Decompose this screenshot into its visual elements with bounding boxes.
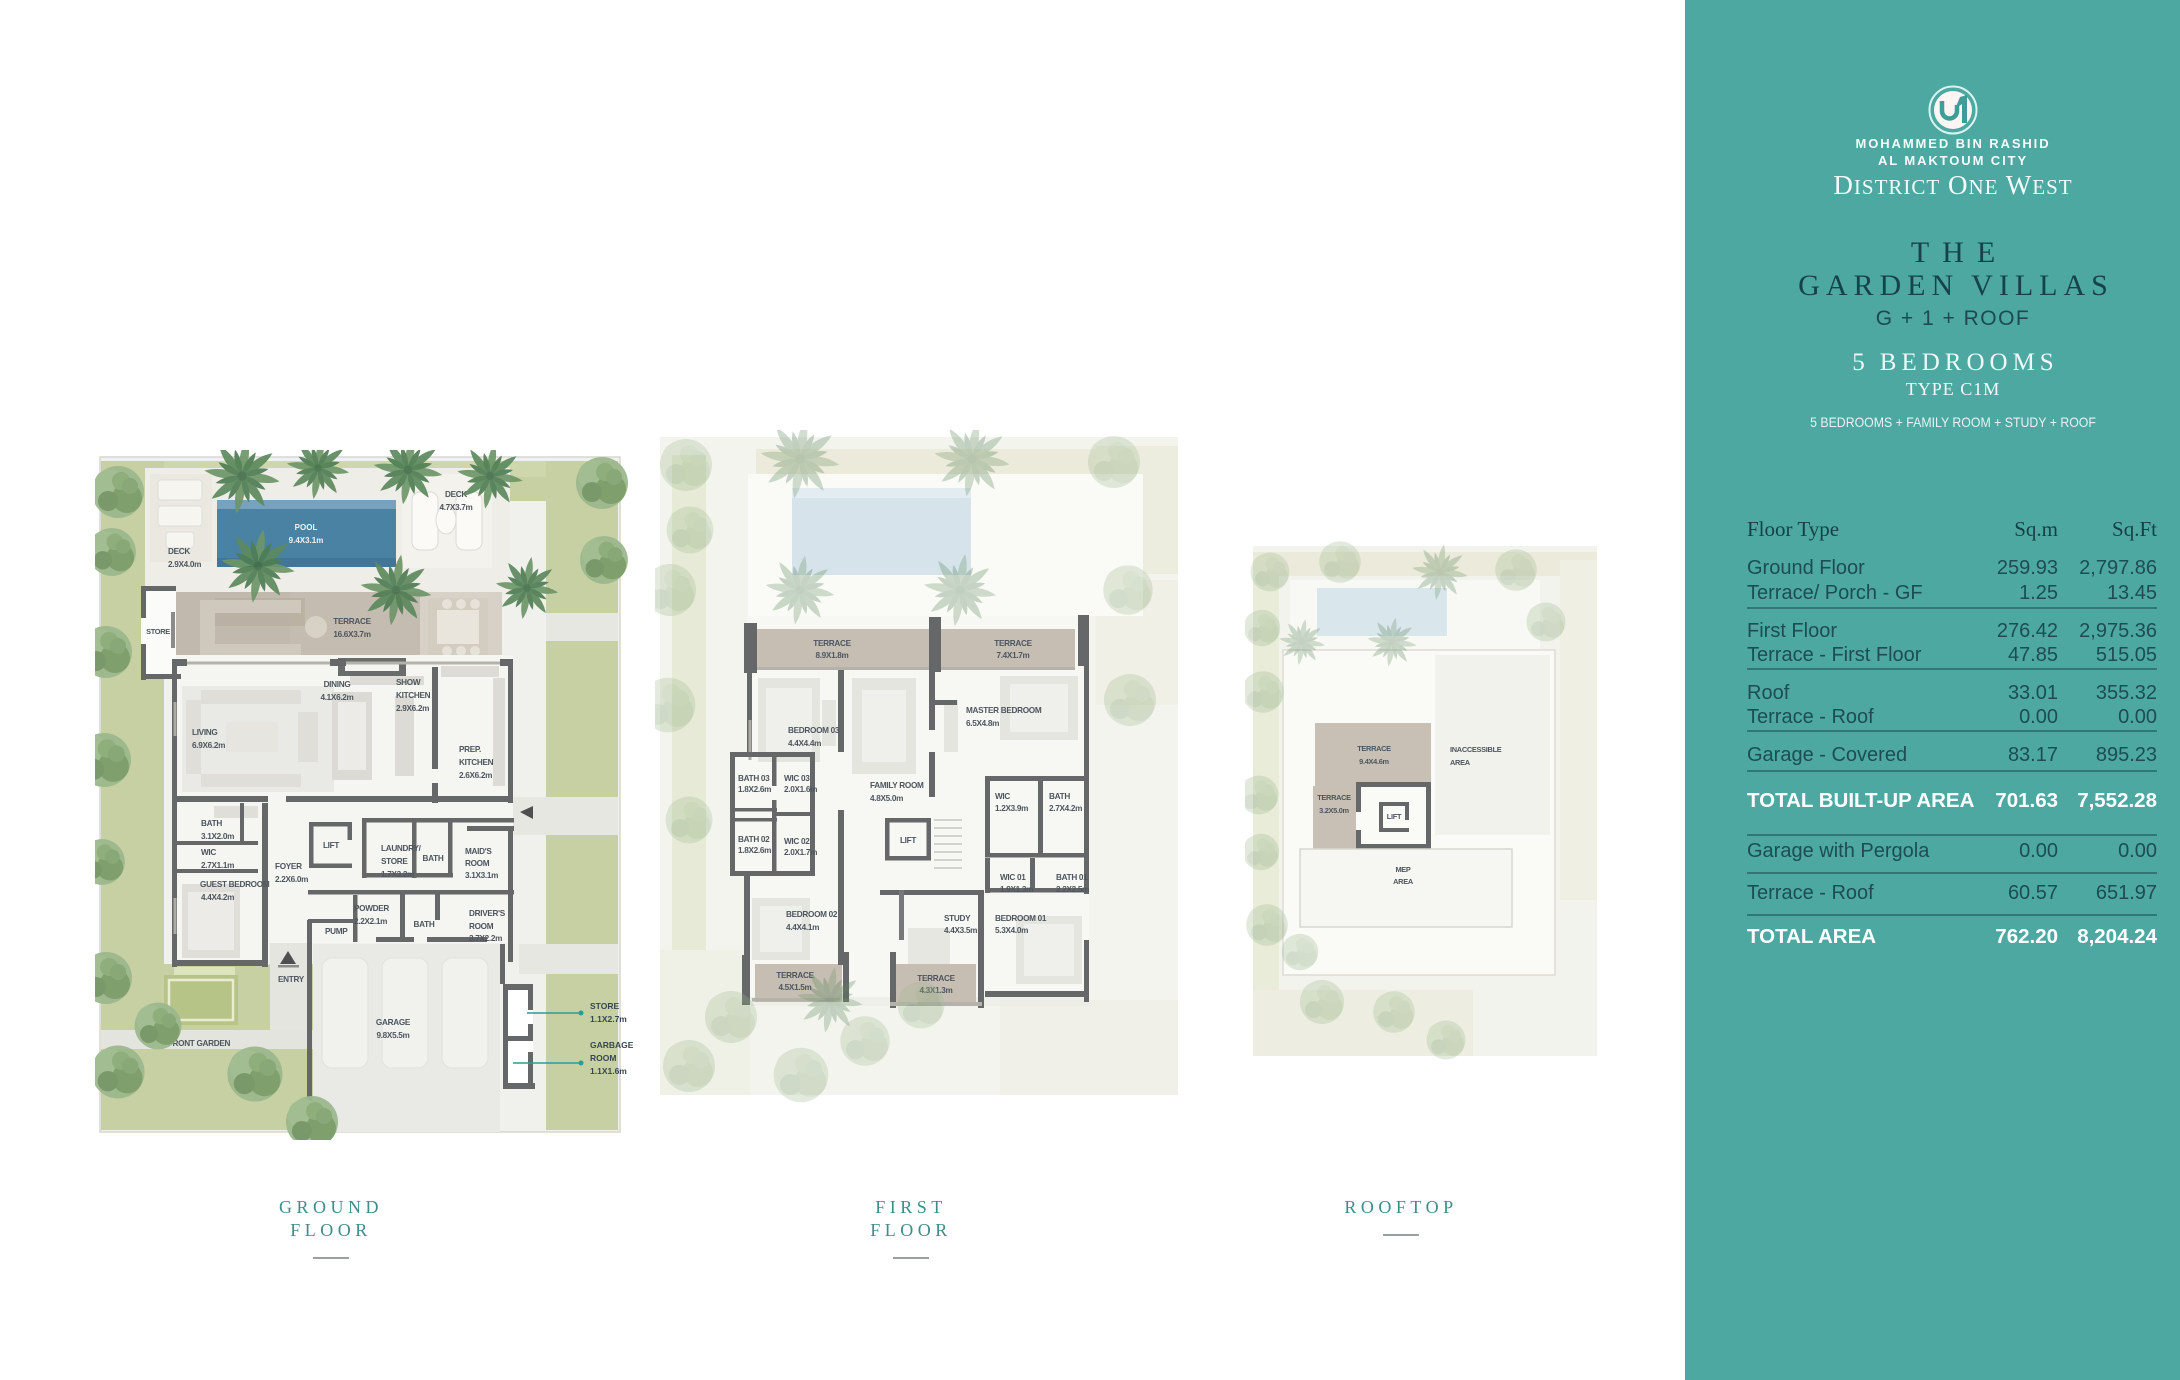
svg-text:BATH 01: BATH 01 xyxy=(1056,873,1088,882)
svg-text:2.9X4.0m: 2.9X4.0m xyxy=(168,560,201,569)
svg-text:1.2X3.9m: 1.2X3.9m xyxy=(995,804,1028,813)
svg-text:BEDROOM 01: BEDROOM 01 xyxy=(995,914,1047,923)
svg-text:33.01: 33.01 xyxy=(2008,682,2058,704)
svg-text:Garage - Covered: Garage - Covered xyxy=(1747,744,1907,766)
svg-text:2,797.86: 2,797.86 xyxy=(2079,557,2157,579)
svg-text:2.7X4.2m: 2.7X4.2m xyxy=(1049,804,1082,813)
svg-text:LIFT: LIFT xyxy=(323,841,339,850)
svg-text:AREA: AREA xyxy=(1450,758,1471,767)
svg-text:4.4X4.4m: 4.4X4.4m xyxy=(788,739,821,748)
svg-text:First Floor: First Floor xyxy=(1747,620,1837,642)
svg-text:BATH: BATH xyxy=(414,920,435,929)
svg-text:STORE: STORE xyxy=(381,857,408,866)
svg-text:TERRACE: TERRACE xyxy=(1357,744,1391,753)
svg-text:BATH: BATH xyxy=(201,819,222,828)
svg-text:MEP: MEP xyxy=(1395,865,1410,874)
svg-text:AREA: AREA xyxy=(1393,877,1414,886)
svg-text:Terrace - First Floor: Terrace - First Floor xyxy=(1747,644,1922,666)
svg-text:BEDROOM 03: BEDROOM 03 xyxy=(788,726,840,735)
svg-text:STUDY: STUDY xyxy=(944,914,971,923)
svg-text:Terrace - Roof: Terrace - Roof xyxy=(1747,706,1874,728)
svg-text:WIC: WIC xyxy=(995,792,1010,801)
svg-text:MAID'S: MAID'S xyxy=(465,847,492,856)
svg-text:TERRACE: TERRACE xyxy=(776,971,814,980)
svg-text:9.4X4.6m: 9.4X4.6m xyxy=(1359,757,1389,766)
svg-text:DINING: DINING xyxy=(324,680,351,689)
svg-text:9.4X3.1m: 9.4X3.1m xyxy=(289,536,324,545)
svg-text:6.5X4.8m: 6.5X4.8m xyxy=(966,719,999,728)
svg-text:4.4X3.5m: 4.4X3.5m xyxy=(944,926,977,935)
svg-text:TERRACE: TERRACE xyxy=(917,974,955,983)
svg-text:BATH: BATH xyxy=(423,854,444,863)
svg-text:4.1X6.2m: 4.1X6.2m xyxy=(320,693,353,702)
svg-text:POOL: POOL xyxy=(295,523,318,532)
svg-text:ENTRY: ENTRY xyxy=(278,975,305,984)
svg-text:GUEST BEDROOM: GUEST BEDROOM xyxy=(200,880,270,889)
svg-text:16.6X3.7m: 16.6X3.7m xyxy=(333,630,370,639)
svg-text:FRONT GARDEN: FRONT GARDEN xyxy=(168,1039,231,1048)
svg-text:Ground Floor: Ground Floor xyxy=(1747,557,1865,579)
svg-text:TERRACE: TERRACE xyxy=(994,639,1032,648)
svg-text:WIC 02: WIC 02 xyxy=(784,837,810,846)
svg-text:1.1X2.7m: 1.1X2.7m xyxy=(590,1014,627,1024)
svg-text:Sq.m: Sq.m xyxy=(2014,517,2058,541)
svg-text:3.1X2.0m: 3.1X2.0m xyxy=(201,832,234,841)
svg-text:13.45: 13.45 xyxy=(2107,582,2157,604)
svg-text:762.20: 762.20 xyxy=(1995,925,2058,948)
svg-text:2.2X6.0m: 2.2X6.0m xyxy=(275,875,308,884)
svg-text:2.0X1.7m: 2.0X1.7m xyxy=(784,848,817,857)
svg-text:TERRACE: TERRACE xyxy=(813,639,851,648)
svg-text:276.42: 276.42 xyxy=(1997,620,2058,642)
svg-text:ROOM: ROOM xyxy=(590,1053,616,1063)
svg-text:Garage with Pergola: Garage with Pergola xyxy=(1747,840,1930,862)
svg-text:STORE: STORE xyxy=(146,627,170,636)
svg-text:515.05: 515.05 xyxy=(2096,644,2157,666)
svg-text:8.9X1.8m: 8.9X1.8m xyxy=(815,651,848,660)
svg-text:DECK: DECK xyxy=(168,547,190,556)
svg-text:PREP.: PREP. xyxy=(459,745,481,754)
svg-text:83.17: 83.17 xyxy=(2008,744,2058,766)
svg-text:ROOM: ROOM xyxy=(465,859,490,868)
svg-text:DECK: DECK xyxy=(445,490,467,499)
svg-text:1.7X3.2m: 1.7X3.2m xyxy=(381,870,414,879)
svg-text:LIFT: LIFT xyxy=(1387,812,1402,821)
svg-text:4.5X1.5m: 4.5X1.5m xyxy=(778,983,811,992)
svg-text:TERRACE: TERRACE xyxy=(1317,793,1351,802)
svg-text:651.97: 651.97 xyxy=(2096,882,2157,904)
svg-text:SHOW: SHOW xyxy=(396,678,421,687)
svg-text:0.00: 0.00 xyxy=(2118,706,2157,728)
svg-text:6.9X6.2m: 6.9X6.2m xyxy=(192,741,225,750)
svg-text:1.8X2.6m: 1.8X2.6m xyxy=(738,846,771,855)
svg-text:8,204.24: 8,204.24 xyxy=(2077,925,2157,948)
svg-text:TERRACE: TERRACE xyxy=(333,617,371,626)
svg-text:3.2X5.0m: 3.2X5.0m xyxy=(1319,806,1349,815)
svg-text:ROOM: ROOM xyxy=(469,922,494,931)
svg-text:60.57: 60.57 xyxy=(2008,882,2058,904)
svg-text:3.7X2.2m: 3.7X2.2m xyxy=(469,934,502,943)
svg-text:259.93: 259.93 xyxy=(1997,557,2058,579)
svg-text:WIC: WIC xyxy=(201,848,216,857)
svg-text:1.1X1.6m: 1.1X1.6m xyxy=(590,1066,627,1076)
svg-text:2.2X2.5m: 2.2X2.5m xyxy=(1056,885,1089,894)
svg-text:1.8X2.6m: 1.8X2.6m xyxy=(738,785,771,794)
svg-text:FOYER: FOYER xyxy=(275,862,302,871)
svg-text:4.7X3.7m: 4.7X3.7m xyxy=(439,503,472,512)
svg-text:0.00: 0.00 xyxy=(2118,840,2157,862)
svg-text:BATH 03: BATH 03 xyxy=(738,774,770,783)
svg-text:WIC 01: WIC 01 xyxy=(1000,873,1026,882)
svg-text:47.85: 47.85 xyxy=(2008,644,2058,666)
svg-text:GARAGE: GARAGE xyxy=(376,1018,411,1027)
svg-text:2.2X2.1m: 2.2X2.1m xyxy=(354,917,387,926)
svg-text:Terrace - Roof: Terrace - Roof xyxy=(1747,882,1874,904)
svg-text:1.9X1.3m: 1.9X1.3m xyxy=(1000,885,1033,894)
svg-text:LIVING: LIVING xyxy=(192,728,218,737)
svg-text:895.23: 895.23 xyxy=(2096,744,2157,766)
svg-text:LIFT: LIFT xyxy=(900,836,916,845)
svg-text:5.3X4.0m: 5.3X4.0m xyxy=(995,926,1028,935)
svg-text:INACCESSIBLE: INACCESSIBLE xyxy=(1450,745,1502,754)
svg-text:STORE: STORE xyxy=(590,1001,619,1011)
svg-text:TOTAL BUILT-UP AREA: TOTAL BUILT-UP AREA xyxy=(1747,789,1975,812)
svg-text:1.25: 1.25 xyxy=(2019,582,2058,604)
svg-text:LAUNDRY/: LAUNDRY/ xyxy=(381,844,422,853)
svg-text:355.32: 355.32 xyxy=(2096,682,2157,704)
svg-text:TOTAL AREA: TOTAL AREA xyxy=(1747,925,1876,948)
svg-text:2.9X6.2m: 2.9X6.2m xyxy=(396,704,429,713)
svg-text:BATH: BATH xyxy=(1049,792,1070,801)
svg-text:Terrace/ Porch - GF: Terrace/ Porch - GF xyxy=(1747,582,1923,604)
svg-text:2.7X1.1m: 2.7X1.1m xyxy=(201,861,234,870)
svg-text:BEDROOM 02: BEDROOM 02 xyxy=(786,910,838,919)
svg-text:Sq.Ft: Sq.Ft xyxy=(2112,517,2157,541)
svg-text:Roof: Roof xyxy=(1747,682,1790,704)
svg-text:4.4X4.1m: 4.4X4.1m xyxy=(786,923,819,932)
svg-text:Floor Type: Floor Type xyxy=(1747,517,1839,541)
svg-text:0.00: 0.00 xyxy=(2019,840,2058,862)
svg-text:0.00: 0.00 xyxy=(2019,706,2058,728)
svg-text:FAMILY ROOM: FAMILY ROOM xyxy=(870,781,924,790)
svg-text:BATH 02: BATH 02 xyxy=(738,835,770,844)
svg-text:701.63: 701.63 xyxy=(1995,789,2058,812)
svg-text:7.4X1.7m: 7.4X1.7m xyxy=(996,651,1029,660)
svg-text:POWDER: POWDER xyxy=(354,904,389,913)
svg-text:DRIVER'S: DRIVER'S xyxy=(469,909,506,918)
svg-text:4.8X5.0m: 4.8X5.0m xyxy=(870,794,903,803)
svg-text:2.0X1.6m: 2.0X1.6m xyxy=(784,785,817,794)
svg-text:MASTER BEDROOM: MASTER BEDROOM xyxy=(966,706,1042,715)
svg-text:7,552.28: 7,552.28 xyxy=(2077,789,2157,812)
svg-text:4.4X4.2m: 4.4X4.2m xyxy=(201,893,234,902)
svg-text:GARBAGE: GARBAGE xyxy=(590,1040,634,1050)
svg-text:WIC 03: WIC 03 xyxy=(784,774,810,783)
svg-text:PUMP: PUMP xyxy=(325,927,348,936)
svg-text:9.8X5.5m: 9.8X5.5m xyxy=(376,1031,409,1040)
svg-text:2,975.36: 2,975.36 xyxy=(2079,620,2157,642)
svg-text:3.1X3.1m: 3.1X3.1m xyxy=(465,871,498,880)
svg-text:KITCHEN: KITCHEN xyxy=(396,691,431,700)
svg-text:KITCHEN: KITCHEN xyxy=(459,758,494,767)
svg-text:2.6X6.2m: 2.6X6.2m xyxy=(459,771,492,780)
